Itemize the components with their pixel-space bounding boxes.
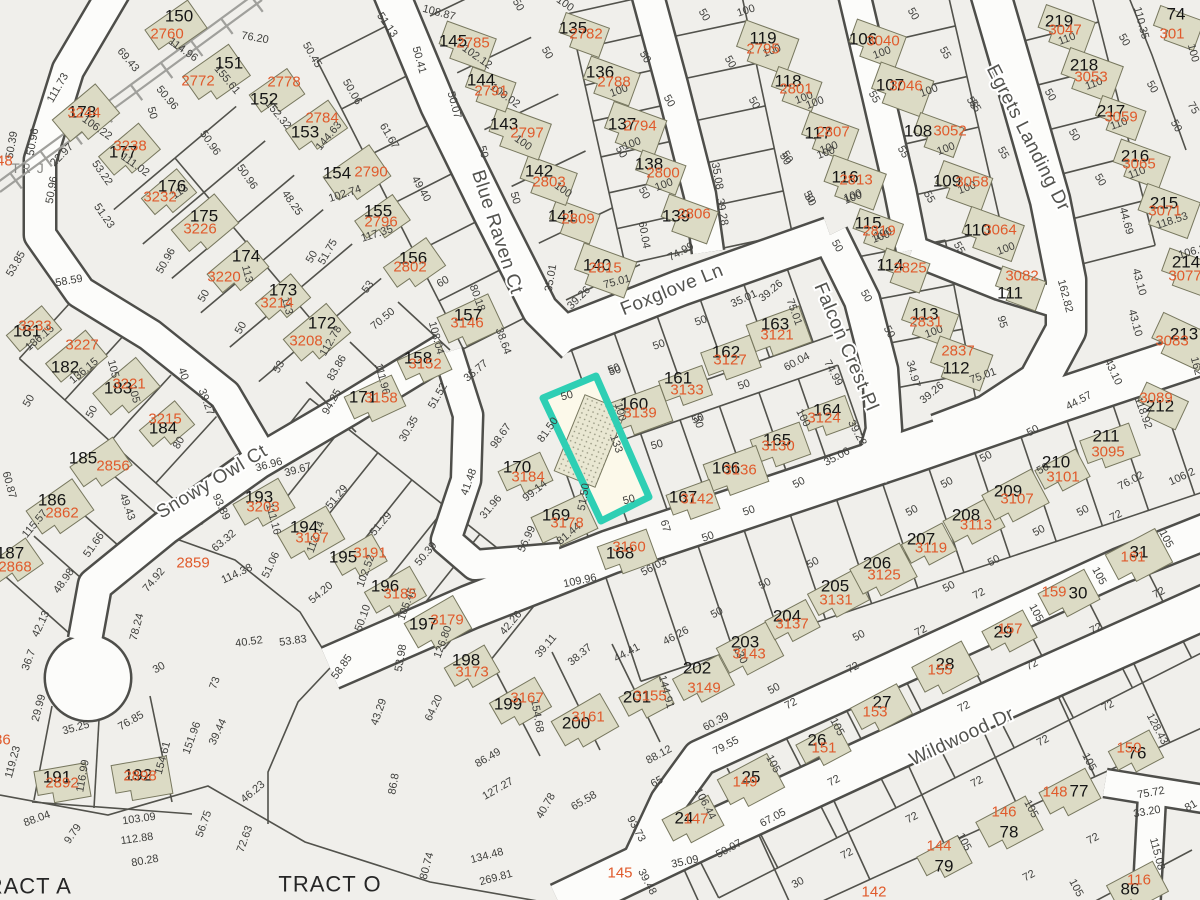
address-label: 144 [926,838,951,855]
address-label: 3064 [983,222,1016,239]
address-label: 3101 [1046,469,1079,486]
address-label: 3047 [1048,22,1081,39]
lot-number: 172 [308,314,336,333]
address-label: 2790 [354,164,387,181]
address-label: 3161 [571,709,604,726]
lot-number: 150 [165,7,193,26]
address-label: 2802 [393,259,426,276]
address-label: 2801 [779,81,812,98]
address-label: 3095 [1091,444,1124,461]
address-label: 2815 [588,260,621,277]
lot-number: 77 [1070,782,1089,801]
address-label: 3221 [112,376,145,393]
address-label: 3107 [1000,491,1033,508]
address-label: 142 [861,884,886,900]
address-label: 159 [1041,584,1066,601]
address-label: 2795 [746,41,779,58]
address-label: 3149 [687,680,720,697]
address-label: 3119 [915,540,947,557]
map-canvas[interactable]: 111.7369.4376.20114.96155.61152.3250.965… [0,0,1200,900]
lot-number: 182 [51,358,79,377]
address-label: 3197 [295,530,328,547]
map-viewport[interactable]: 111.7369.4376.20114.96155.61152.3250.965… [0,0,1200,900]
address-label: 2886 [0,732,11,749]
address-label: 3227 [65,337,98,354]
address-label: 3220 [207,269,240,286]
address-label: 3052 [933,123,966,140]
address-label: 150 [1116,740,1141,757]
address-label: 3158 [364,390,397,407]
address-label: 3082 [1005,268,1038,285]
lot-number: 174 [232,247,260,266]
address-label: 3214 [260,295,293,312]
address-label: 3058 [955,174,988,191]
address-label: 3136 [723,462,756,479]
address-label: 2784 [305,110,338,127]
address-label: 3127 [713,352,746,369]
lot-number: 78 [1000,823,1019,842]
address-label: 2825 [893,260,926,277]
lot-number: 151 [215,54,243,73]
address-label: 149 [732,774,757,791]
address-label: 2785 [456,35,489,52]
address-label: 157 [997,621,1022,638]
address-label: 2859 [176,555,209,572]
address-label: 3178 [550,515,583,532]
address-label: 3089 [1139,390,1172,407]
address-label: 2794 [623,118,656,135]
lot-number: 152 [250,90,278,109]
address-label: 147 [683,811,708,828]
tract-label: TR J [11,160,45,176]
address-label: 3184 [511,469,544,486]
address-label: 2856 [96,458,129,475]
address-label: 3142 [680,491,713,508]
address-label: 2809 [561,211,594,228]
address-label: 2760 [150,26,183,43]
address-label: 3191 [353,545,386,562]
lot-number: 74 [1167,5,1186,24]
lot-number: 202 [683,659,711,678]
address-label: 301 [1159,26,1184,43]
address-label: 3143 [732,646,765,663]
address-label: 3179 [430,612,463,629]
address-label: 3226 [183,221,216,238]
address-label: 3125 [867,567,900,584]
lot-number: 30 [1069,584,1088,603]
lot-number: 79 [935,857,954,876]
address-label: 3139 [623,405,656,422]
address-label: 3152 [408,356,441,373]
address-label: 3083 [1155,333,1188,350]
address-label: 3232 [143,189,176,206]
address-label: 2898 [123,768,156,785]
address-label: 2796 [364,214,397,231]
address-label: 3046 [889,78,922,95]
address-label: 2803 [532,174,565,191]
address-label: 3133 [670,382,703,399]
address-label: 2782 [569,26,602,43]
address-label: 2837 [941,343,974,360]
address-label: 3146 [450,315,483,332]
address-label: 2772 [181,73,214,90]
address-label: 151 [811,740,836,757]
address-label: 3155 [633,688,666,705]
address-label: 3160 [612,539,645,556]
address-label: 153 [862,704,887,721]
address-label: 2813 [839,172,872,189]
lot-number: 108 [904,122,932,141]
lot-number: 185 [69,449,97,468]
address-label: 2791 [474,83,507,100]
address-label: 116 [1127,872,1151,889]
address-label: 3113 [960,517,992,534]
address-label: 3121 [760,327,793,344]
address-label: 3238 [113,138,146,155]
tract-label: TRACT A [0,874,72,899]
address-label: 148 [1042,784,1067,801]
address-label: 2788 [597,74,630,91]
address-label: 3203 [246,499,279,516]
address-label: 3185 [383,586,416,603]
address-label: 3167 [510,690,543,707]
address-label: 3173 [455,664,488,681]
address-label: 3071 [1148,203,1181,220]
address-label: 3233 [18,318,51,335]
address-label: 3065 [1122,156,1155,173]
address-label: 3131 [819,592,852,609]
address-label: 3059 [1104,109,1137,126]
address-label: 2819 [862,223,895,240]
address-label: 3040 [866,33,899,50]
address-label: 2806 [677,206,710,223]
address-label: 155 [927,662,952,679]
lot-number: 112 [942,359,969,378]
address-label: 2778 [267,74,300,91]
address-label: 3137 [775,616,808,633]
address-label: 2892 [45,775,78,792]
lot-number: 154 [323,164,351,183]
address-label: 3244 [67,105,100,122]
address-label: 3208 [289,333,322,350]
address-label: 3053 [1074,69,1107,86]
address-label: 2807 [816,124,849,141]
address-label: 2862 [45,505,78,522]
address-label: 2868 [0,559,32,576]
address-label: 2831 [909,314,942,331]
tract-label: TRACT O [278,872,381,897]
lot-number: 111 [997,284,1023,303]
address-label: 3124 [807,410,840,427]
address-label: 161 [1120,549,1145,566]
address-label: 3130 [761,438,794,455]
address-label: 3215 [148,411,181,428]
address-label: 145 [607,865,632,882]
address-label: 2797 [510,125,543,142]
address-label: 146 [991,804,1016,821]
address-label: 3077 [1168,268,1200,285]
address-label: 2800 [646,165,679,182]
